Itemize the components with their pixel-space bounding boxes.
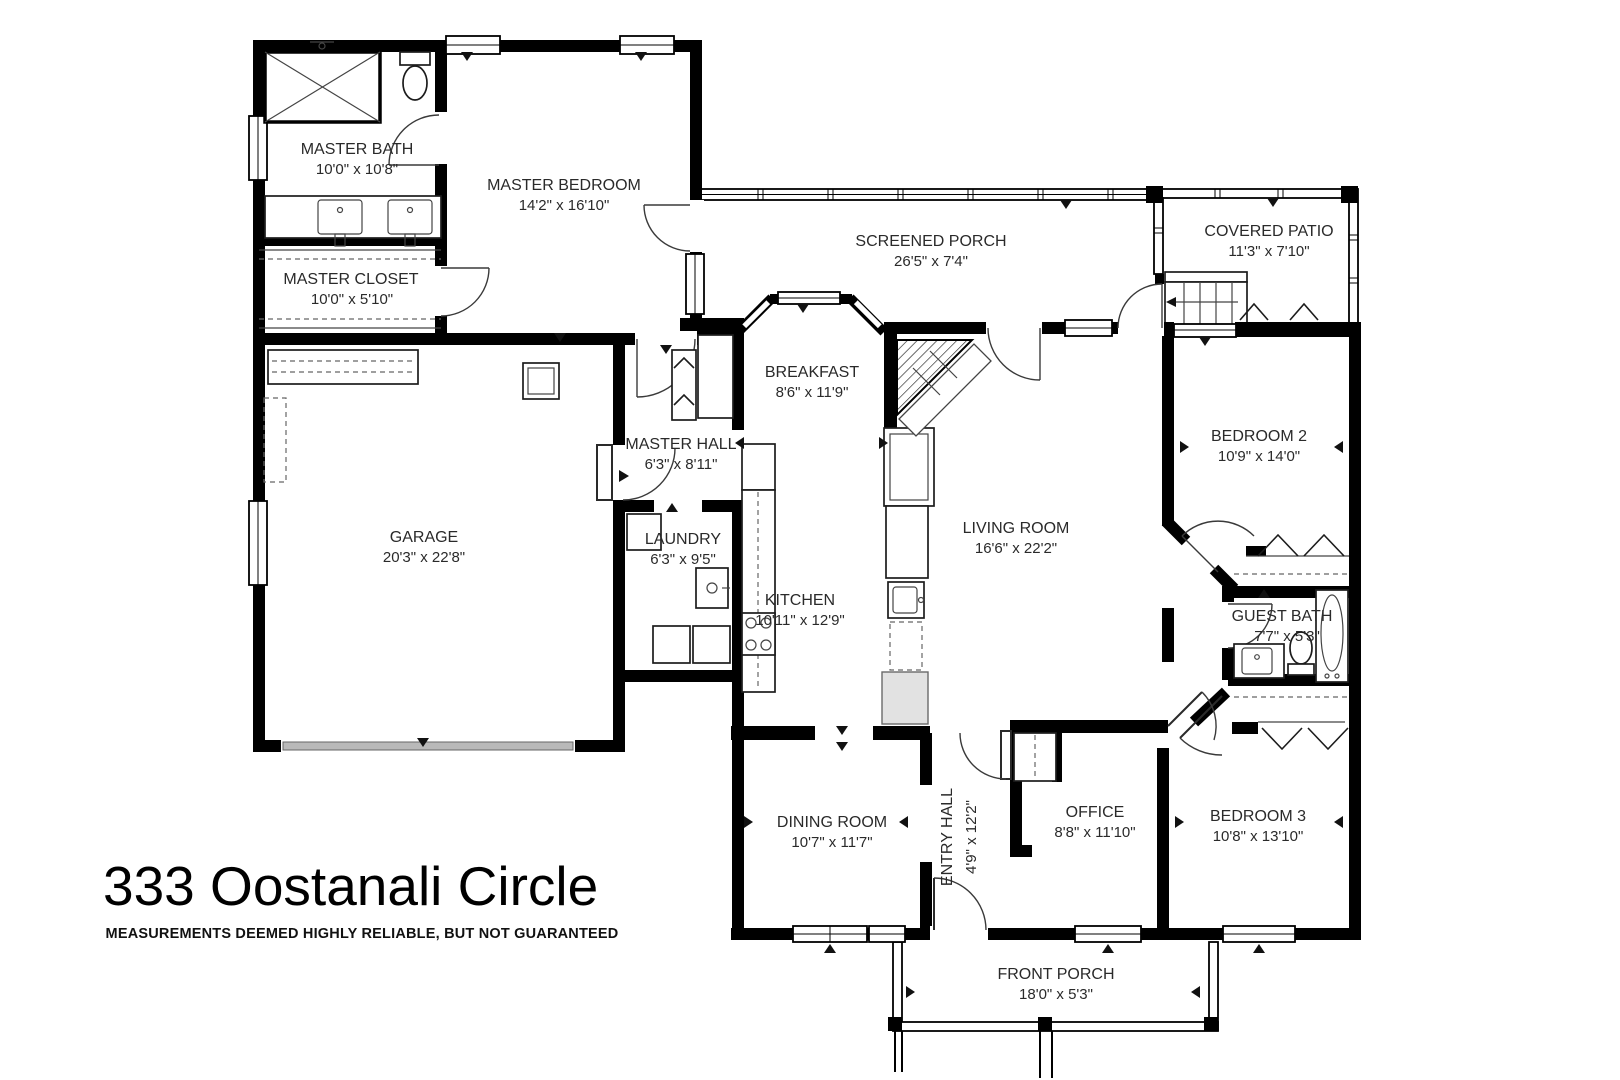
utility-sink — [696, 568, 730, 608]
window — [793, 926, 867, 942]
dryer — [693, 626, 730, 663]
room-dims-laundry: 6'3" x 9'5" — [650, 551, 716, 568]
room-dims-master-hall: 6'3" x 8'11" — [645, 456, 718, 473]
room-label-master-bath: MASTER BATH — [301, 141, 414, 158]
chase-duct — [672, 350, 696, 420]
room-label-office: OFFICE — [1066, 804, 1125, 821]
window — [1174, 324, 1236, 337]
dishwasher — [890, 622, 922, 670]
room-dims-garage: 20'3" x 22'8" — [383, 549, 465, 566]
bathtub — [1316, 590, 1348, 682]
guest-vanity — [1234, 644, 1284, 678]
room-label-bedroom-3: BEDROOM 3 — [1210, 808, 1306, 825]
room-label-bedroom-2: BEDROOM 2 — [1211, 428, 1307, 445]
room-label-guest-bath: GUEST BATH — [1232, 608, 1333, 625]
washer — [653, 626, 690, 663]
window — [869, 926, 905, 942]
fixtures — [259, 42, 1349, 781]
room-label-master-closet: MASTER CLOSET — [283, 271, 418, 288]
room-label-living-room: LIVING ROOM — [963, 520, 1070, 537]
room-dims-living-room: 16'6" x 22'2" — [975, 540, 1057, 557]
room-dims-covered-patio: 11'3" x 7'10" — [1228, 243, 1309, 260]
room-dims-breakfast: 8'6" x 11'9" — [776, 384, 849, 401]
garage-door — [283, 742, 573, 750]
bay-window-left — [742, 300, 771, 329]
room-dims-master-bedroom: 14'2" x 16'10" — [519, 197, 610, 214]
room-dims-office: 8'8" x 11'10" — [1054, 824, 1135, 841]
floor-plan-drawing: MASTER BATH 10'0" x 10'8" MASTER CLOSET … — [0, 0, 1620, 1080]
room-dims-master-closet: 10'0" x 5'10" — [311, 291, 393, 308]
water-heater — [523, 363, 559, 399]
hall-cabinet — [698, 335, 733, 418]
page-title: 333 Oostanali Circle — [103, 855, 598, 917]
room-label-breakfast: BREAKFAST — [765, 364, 859, 381]
kitchen-sink — [888, 582, 924, 618]
walls — [253, 40, 1361, 940]
window — [446, 36, 500, 54]
patio-wall-chevrons — [1240, 304, 1318, 320]
bedroom-2-door — [1182, 521, 1254, 572]
porch-post — [888, 1017, 902, 1031]
stairs — [1165, 272, 1247, 328]
shower — [265, 42, 380, 122]
porch-post — [1038, 1017, 1052, 1031]
kitchen-counters — [742, 428, 934, 724]
bay-window-center — [778, 292, 840, 304]
room-dims-kitchen: 10'11" x 12'9" — [755, 612, 845, 629]
room-label-dining-room: DINING ROOM — [777, 814, 887, 831]
room-dims-bedroom-2: 10'9" x 14'0" — [1218, 448, 1300, 465]
toilet — [400, 52, 430, 100]
room-dims-master-bath: 10'0" x 10'8" — [316, 161, 398, 178]
room-label-master-bedroom: MASTER BEDROOM — [487, 177, 641, 194]
room-dims-bedroom-3: 10'8" x 13'10" — [1213, 828, 1304, 845]
master-closet-shelves — [259, 250, 441, 328]
front-porch-rails — [888, 942, 1218, 1078]
room-dims-screened-porch: 26'5" x 7'4" — [894, 253, 968, 270]
room-label-master-hall: MASTER HALL — [625, 436, 736, 453]
title-block: 333 Oostanali Circle MEASUREMENTS DEEMED… — [103, 855, 618, 942]
patio-post — [1341, 186, 1358, 203]
room-label-covered-patio: COVERED PATIO — [1204, 223, 1333, 240]
window — [249, 501, 267, 585]
room-label-entry-hall: ENTRY HALL — [939, 788, 956, 886]
room-label-laundry: LAUNDRY — [645, 531, 722, 548]
garage-shelving — [264, 350, 418, 482]
master-bedroom-porch-door — [644, 205, 690, 251]
disclaimer: MEASUREMENTS DEEMED HIGHLY RELIABLE, BUT… — [106, 926, 619, 942]
room-label-garage: GARAGE — [390, 529, 458, 546]
window — [249, 116, 267, 180]
fireplace — [897, 340, 991, 436]
refrigerator — [884, 428, 934, 506]
window — [1223, 926, 1295, 942]
room-label-kitchen: KITCHEN — [765, 592, 835, 609]
entry-closet-door — [960, 731, 1011, 779]
room-dims-front-porch: 18'0" x 5'3" — [1019, 986, 1093, 1003]
room-label-front-porch: FRONT PORCH — [997, 966, 1114, 983]
bay-window-right — [853, 300, 882, 329]
window — [686, 254, 704, 314]
floor-plan-page: MASTER BATH 10'0" x 10'8" MASTER CLOSET … — [0, 0, 1620, 1080]
entry-closet — [1014, 733, 1056, 781]
window — [1075, 926, 1141, 942]
porch-post — [1204, 1017, 1218, 1031]
doors — [389, 115, 1272, 930]
window — [620, 36, 674, 54]
vanity-double-sink — [265, 196, 441, 246]
patio-post — [1146, 186, 1163, 203]
room-label-screened-porch: SCREENED PORCH — [855, 233, 1006, 250]
room-dims-guest-bath: 7'7" x 5'3" — [1254, 628, 1320, 645]
window — [1065, 320, 1112, 336]
base-cabinet — [882, 672, 928, 724]
room-dims-dining-room: 10'7" x 11'7" — [791, 834, 872, 851]
screened-porch-screens — [696, 189, 1154, 200]
room-dims-entry-hall: 4'9" x 12'2" — [963, 800, 980, 874]
